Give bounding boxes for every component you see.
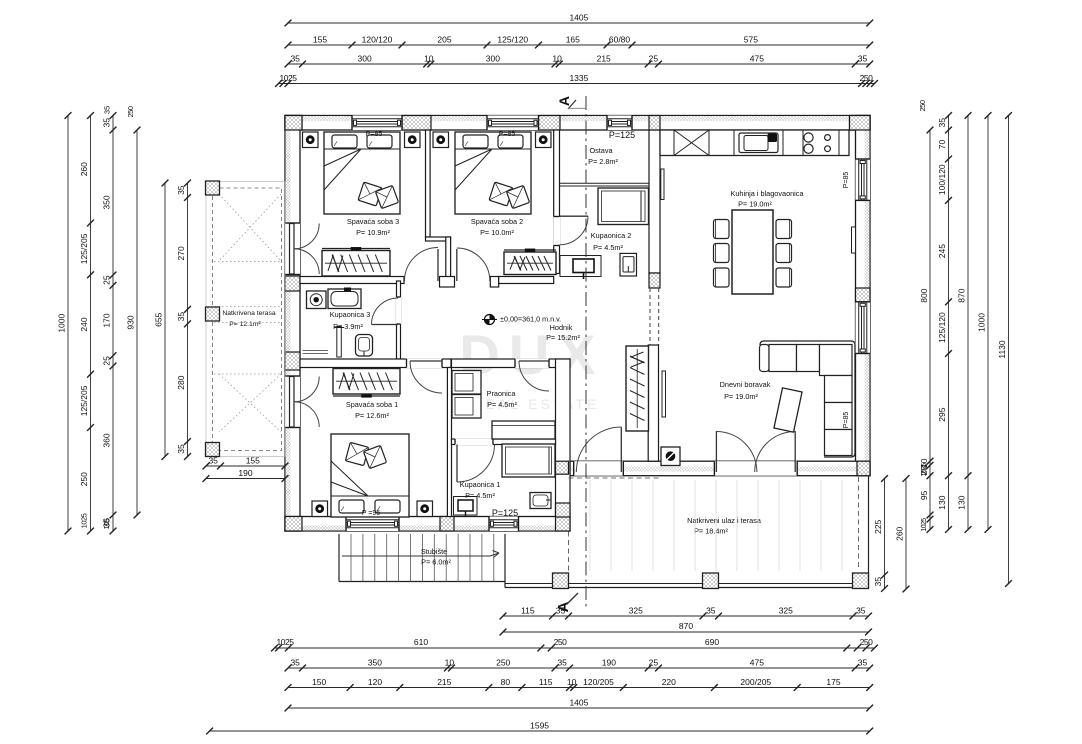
svg-text:300: 300	[358, 54, 372, 64]
svg-text:1025: 1025	[921, 463, 928, 477]
svg-text:325: 325	[779, 606, 793, 616]
svg-text:115: 115	[521, 606, 535, 616]
svg-text:P =95: P =95	[362, 510, 380, 517]
svg-text:610: 610	[414, 637, 428, 647]
svg-text:130: 130	[957, 495, 967, 509]
svg-text:125/120: 125/120	[937, 312, 947, 343]
svg-text:P=125: P=125	[492, 508, 518, 518]
svg-text:10: 10	[567, 677, 577, 687]
svg-text:175: 175	[826, 677, 840, 687]
svg-text:35: 35	[557, 658, 567, 668]
svg-text:Natkriveni ulaz i terasa: Natkriveni ulaz i terasa	[687, 516, 762, 525]
svg-text:35: 35	[858, 54, 868, 64]
svg-text:60/80: 60/80	[609, 35, 631, 45]
svg-text:±0,00=361,0 m.n.v.: ±0,00=361,0 m.n.v.	[500, 315, 561, 324]
svg-text:1025: 1025	[277, 637, 295, 647]
svg-text:P= 2.8m²: P= 2.8m²	[588, 157, 618, 166]
svg-text:250: 250	[860, 637, 873, 647]
svg-text:1025: 1025	[280, 73, 298, 83]
svg-text:35: 35	[937, 118, 947, 128]
svg-text:120: 120	[368, 677, 382, 687]
svg-text:295: 295	[937, 407, 947, 421]
svg-text:165: 165	[566, 35, 580, 45]
svg-text:Ostava: Ostava	[589, 146, 613, 155]
svg-text:325: 325	[629, 606, 643, 616]
svg-text:300: 300	[486, 54, 500, 64]
svg-text:P= 4.5m²: P= 4.5m²	[593, 243, 623, 252]
svg-text:125/205: 125/205	[79, 385, 89, 416]
svg-text:35: 35	[706, 606, 716, 616]
svg-text:1595: 1595	[530, 721, 549, 731]
svg-text:350: 350	[102, 195, 112, 209]
svg-text:800: 800	[919, 288, 929, 302]
svg-text:1025: 1025	[921, 518, 928, 532]
svg-text:475: 475	[750, 658, 764, 668]
svg-text:35: 35	[176, 444, 186, 454]
svg-text:95: 95	[919, 490, 929, 500]
svg-text:240: 240	[79, 317, 89, 331]
svg-text:170: 170	[102, 313, 112, 327]
svg-text:245: 245	[937, 244, 947, 258]
svg-text:Kupaonica 3: Kupaonica 3	[330, 310, 371, 319]
svg-text:280: 280	[176, 375, 186, 389]
svg-text:1405: 1405	[569, 13, 588, 23]
svg-text:Spavaća soba 2: Spavaća soba 2	[471, 217, 523, 226]
svg-text:350: 350	[368, 658, 382, 668]
svg-text:250: 250	[126, 106, 135, 117]
svg-text:155: 155	[313, 35, 327, 45]
svg-text:200/205: 200/205	[740, 677, 771, 687]
svg-text:125/205: 125/205	[79, 233, 89, 264]
svg-text:P= 15.2m²: P= 15.2m²	[546, 333, 580, 342]
svg-text:70: 70	[937, 140, 947, 150]
svg-text:1130: 1130	[997, 340, 1007, 359]
svg-text:10: 10	[445, 658, 455, 668]
svg-text:250: 250	[496, 658, 510, 668]
svg-text:P= 19.0m²: P= 19.0m²	[738, 200, 772, 209]
svg-text:1405: 1405	[569, 698, 588, 708]
svg-text:475: 475	[750, 54, 764, 64]
svg-text:360: 360	[102, 433, 112, 447]
svg-text:270: 270	[176, 246, 186, 260]
svg-text:215: 215	[597, 54, 611, 64]
svg-text:250: 250	[860, 73, 873, 83]
svg-text:P= 4.5m²: P= 4.5m²	[465, 491, 495, 500]
svg-text:35: 35	[102, 118, 112, 128]
svg-text:P=85: P=85	[499, 131, 516, 138]
svg-text:Kuhinja i blagovaonica: Kuhinja i blagovaonica	[730, 189, 804, 198]
svg-text:35: 35	[176, 185, 186, 195]
svg-text:260: 260	[895, 526, 905, 540]
svg-text:260: 260	[79, 162, 89, 176]
svg-text:80: 80	[501, 677, 511, 687]
svg-text:P= 12.1m²: P= 12.1m²	[229, 321, 261, 328]
svg-text:Natkrivena terasa: Natkrivena terasa	[222, 310, 275, 317]
svg-text:35: 35	[290, 658, 300, 668]
svg-text:Hodnik: Hodnik	[550, 323, 573, 332]
svg-text:P= 3.9m²: P= 3.9m²	[333, 322, 363, 331]
svg-text:P= 19.0m²: P= 19.0m²	[724, 392, 758, 401]
svg-text:190: 190	[602, 658, 616, 668]
svg-text:125/120: 125/120	[497, 35, 528, 45]
svg-text:A: A	[556, 96, 572, 106]
svg-text:Dnevni boravak: Dnevni boravak	[720, 380, 771, 389]
svg-text:205: 205	[437, 35, 451, 45]
svg-text:P=85: P=85	[366, 131, 383, 138]
svg-text:120/120: 120/120	[362, 35, 393, 45]
svg-text:Kupaonica 1: Kupaonica 1	[460, 480, 501, 489]
svg-text:1025: 1025	[80, 513, 89, 528]
svg-text:25: 25	[102, 275, 112, 285]
svg-text:1000: 1000	[977, 313, 987, 332]
svg-text:Stubište: Stubište	[421, 547, 447, 556]
svg-text:690: 690	[705, 637, 719, 647]
svg-text:35: 35	[856, 606, 866, 616]
svg-text:225: 225	[873, 519, 883, 533]
svg-text:655: 655	[154, 312, 164, 326]
svg-text:P= 10.0m²: P= 10.0m²	[480, 228, 514, 237]
svg-text:220: 220	[662, 677, 676, 687]
svg-text:870: 870	[679, 621, 693, 631]
svg-text:P=85: P=85	[843, 172, 850, 189]
svg-text:Spavaća soba 3: Spavaća soba 3	[347, 217, 399, 226]
svg-text:105: 105	[102, 518, 111, 529]
svg-text:25: 25	[649, 658, 659, 668]
svg-text:Praonica: Praonica	[487, 389, 517, 398]
svg-text:25: 25	[102, 356, 112, 366]
svg-text:130: 130	[937, 495, 947, 509]
svg-text:P=85: P=85	[843, 412, 850, 429]
svg-text:120/205: 120/205	[583, 677, 614, 687]
svg-text:10: 10	[424, 54, 434, 64]
svg-text:35: 35	[176, 312, 186, 322]
svg-text:155: 155	[246, 456, 260, 466]
svg-text:250: 250	[79, 472, 89, 486]
svg-text:35: 35	[290, 54, 300, 64]
svg-text:25: 25	[649, 54, 659, 64]
svg-text:P= 6.0m²: P= 6.0m²	[421, 558, 451, 567]
svg-text:P=125: P=125	[609, 130, 635, 140]
svg-text:P= 4.5m²: P= 4.5m²	[487, 400, 517, 409]
svg-text:35: 35	[103, 106, 112, 114]
svg-text:575: 575	[744, 35, 758, 45]
svg-text:100/120: 100/120	[937, 164, 947, 195]
svg-text:1000: 1000	[57, 313, 67, 332]
svg-text:Spavaća soba 1: Spavaća soba 1	[346, 400, 398, 409]
svg-text:150: 150	[312, 677, 326, 687]
svg-text:35: 35	[556, 606, 566, 616]
svg-text:P= 10.9m²: P= 10.9m²	[356, 228, 390, 237]
svg-text:35: 35	[858, 658, 868, 668]
svg-text:215: 215	[437, 677, 451, 687]
svg-text:870: 870	[957, 288, 967, 302]
svg-text:Kupaonica 2: Kupaonica 2	[591, 231, 632, 240]
svg-text:190: 190	[238, 468, 252, 478]
svg-text:35: 35	[208, 456, 218, 466]
svg-text:P= 18.4m²: P= 18.4m²	[694, 527, 728, 536]
svg-text:35: 35	[873, 577, 883, 587]
svg-text:930: 930	[126, 315, 136, 329]
svg-text:1335: 1335	[569, 73, 588, 83]
svg-text:P= 12.6m²: P= 12.6m²	[355, 411, 389, 420]
svg-text:10: 10	[552, 54, 562, 64]
svg-text:115: 115	[539, 677, 553, 687]
svg-text:250: 250	[554, 637, 567, 647]
svg-text:250: 250	[918, 100, 927, 111]
